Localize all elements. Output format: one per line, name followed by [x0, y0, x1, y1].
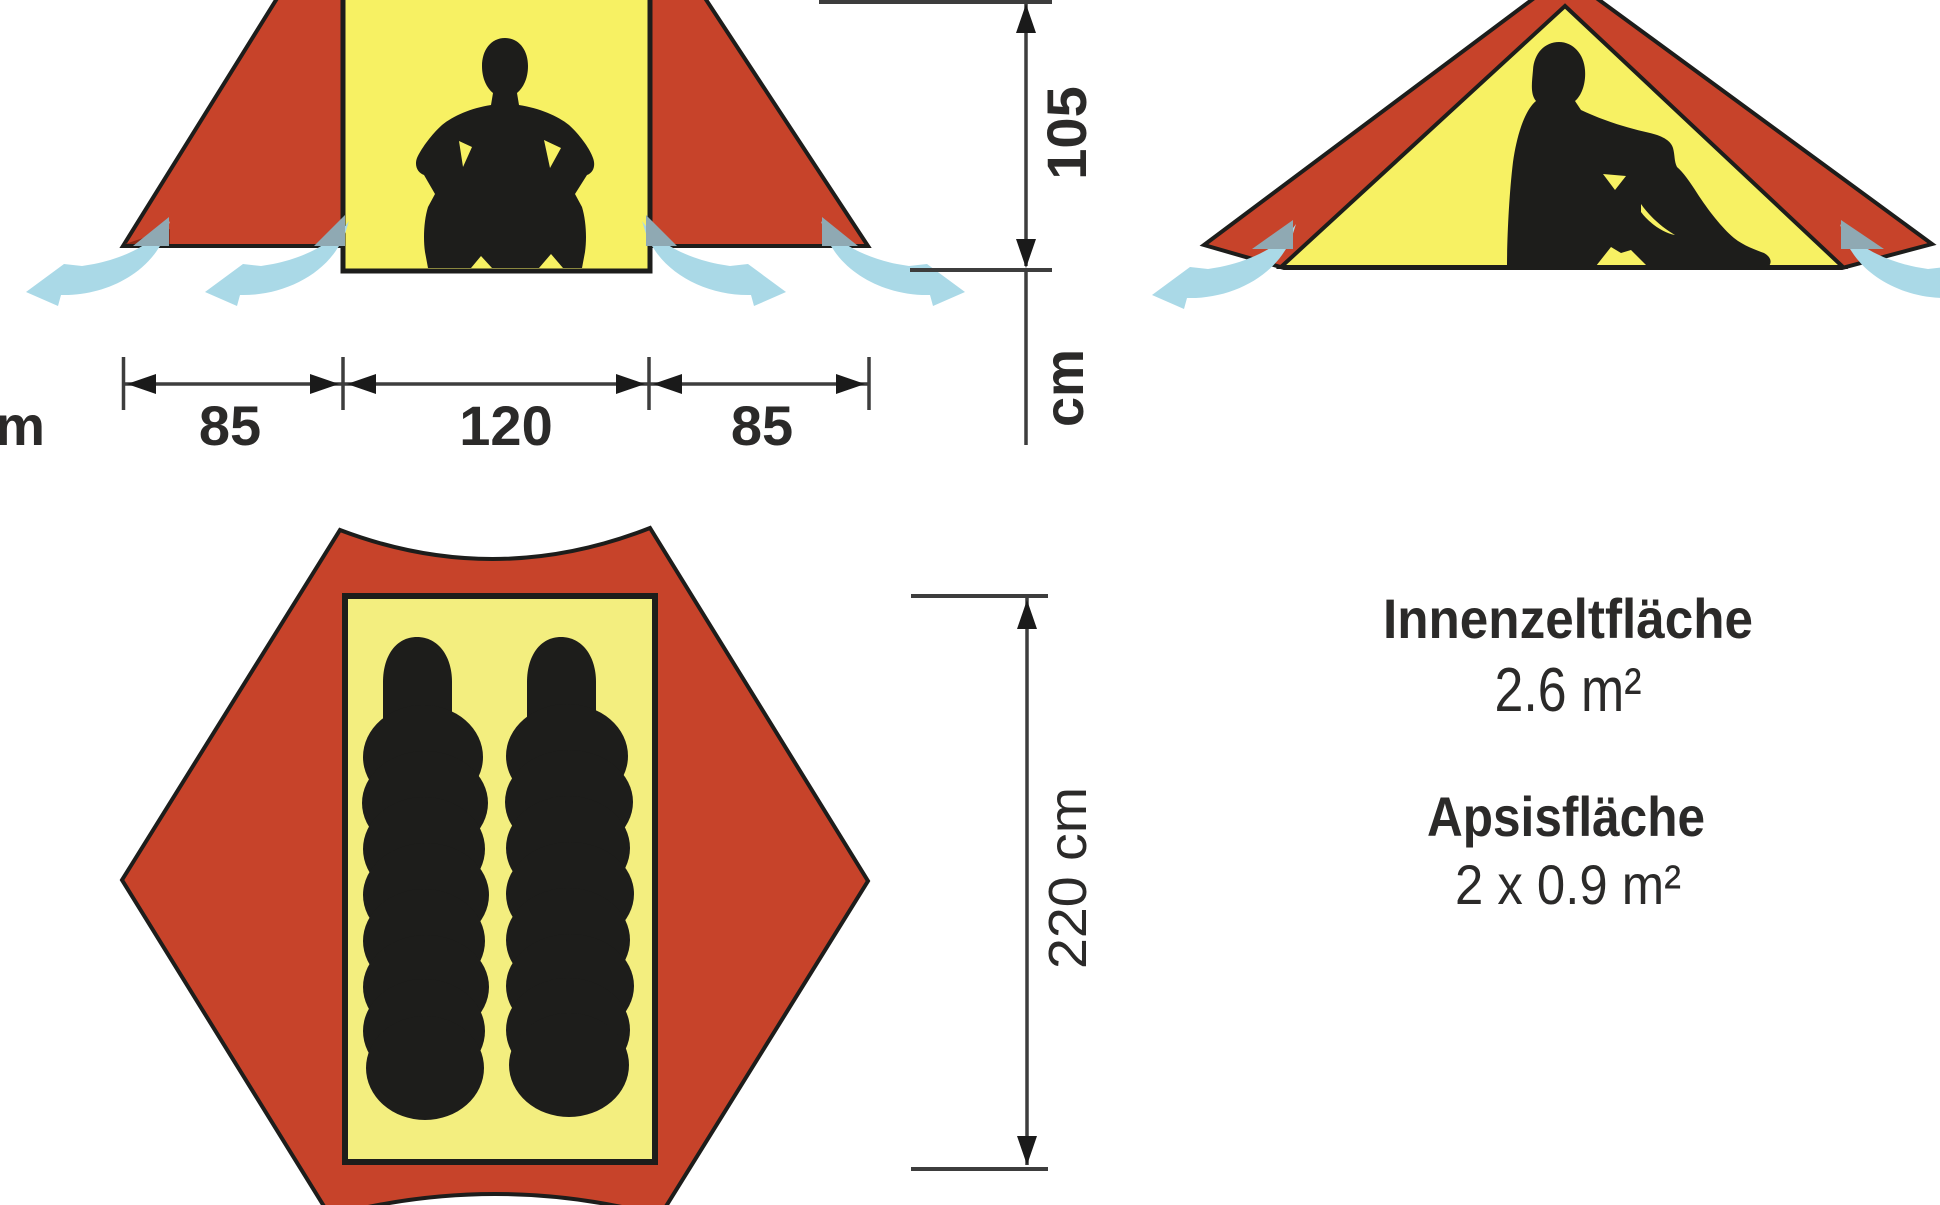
svg-text:cm: cm [1032, 349, 1095, 427]
svg-text:85: 85 [199, 394, 261, 457]
svg-text:85: 85 [731, 394, 793, 457]
svg-text:2 x 0.9 m²: 2 x 0.9 m² [1455, 853, 1681, 916]
svg-text:2.6 m²: 2.6 m² [1495, 656, 1642, 725]
svg-text:105: 105 [1035, 86, 1098, 179]
svg-text:Apsisfläche: Apsisfläche [1427, 785, 1705, 848]
svg-text:cm: cm [0, 394, 45, 457]
svg-text:220 cm: 220 cm [1038, 787, 1098, 969]
svg-text:Innenzeltfläche: Innenzeltfläche [1383, 587, 1753, 650]
svg-text:120: 120 [459, 394, 552, 457]
